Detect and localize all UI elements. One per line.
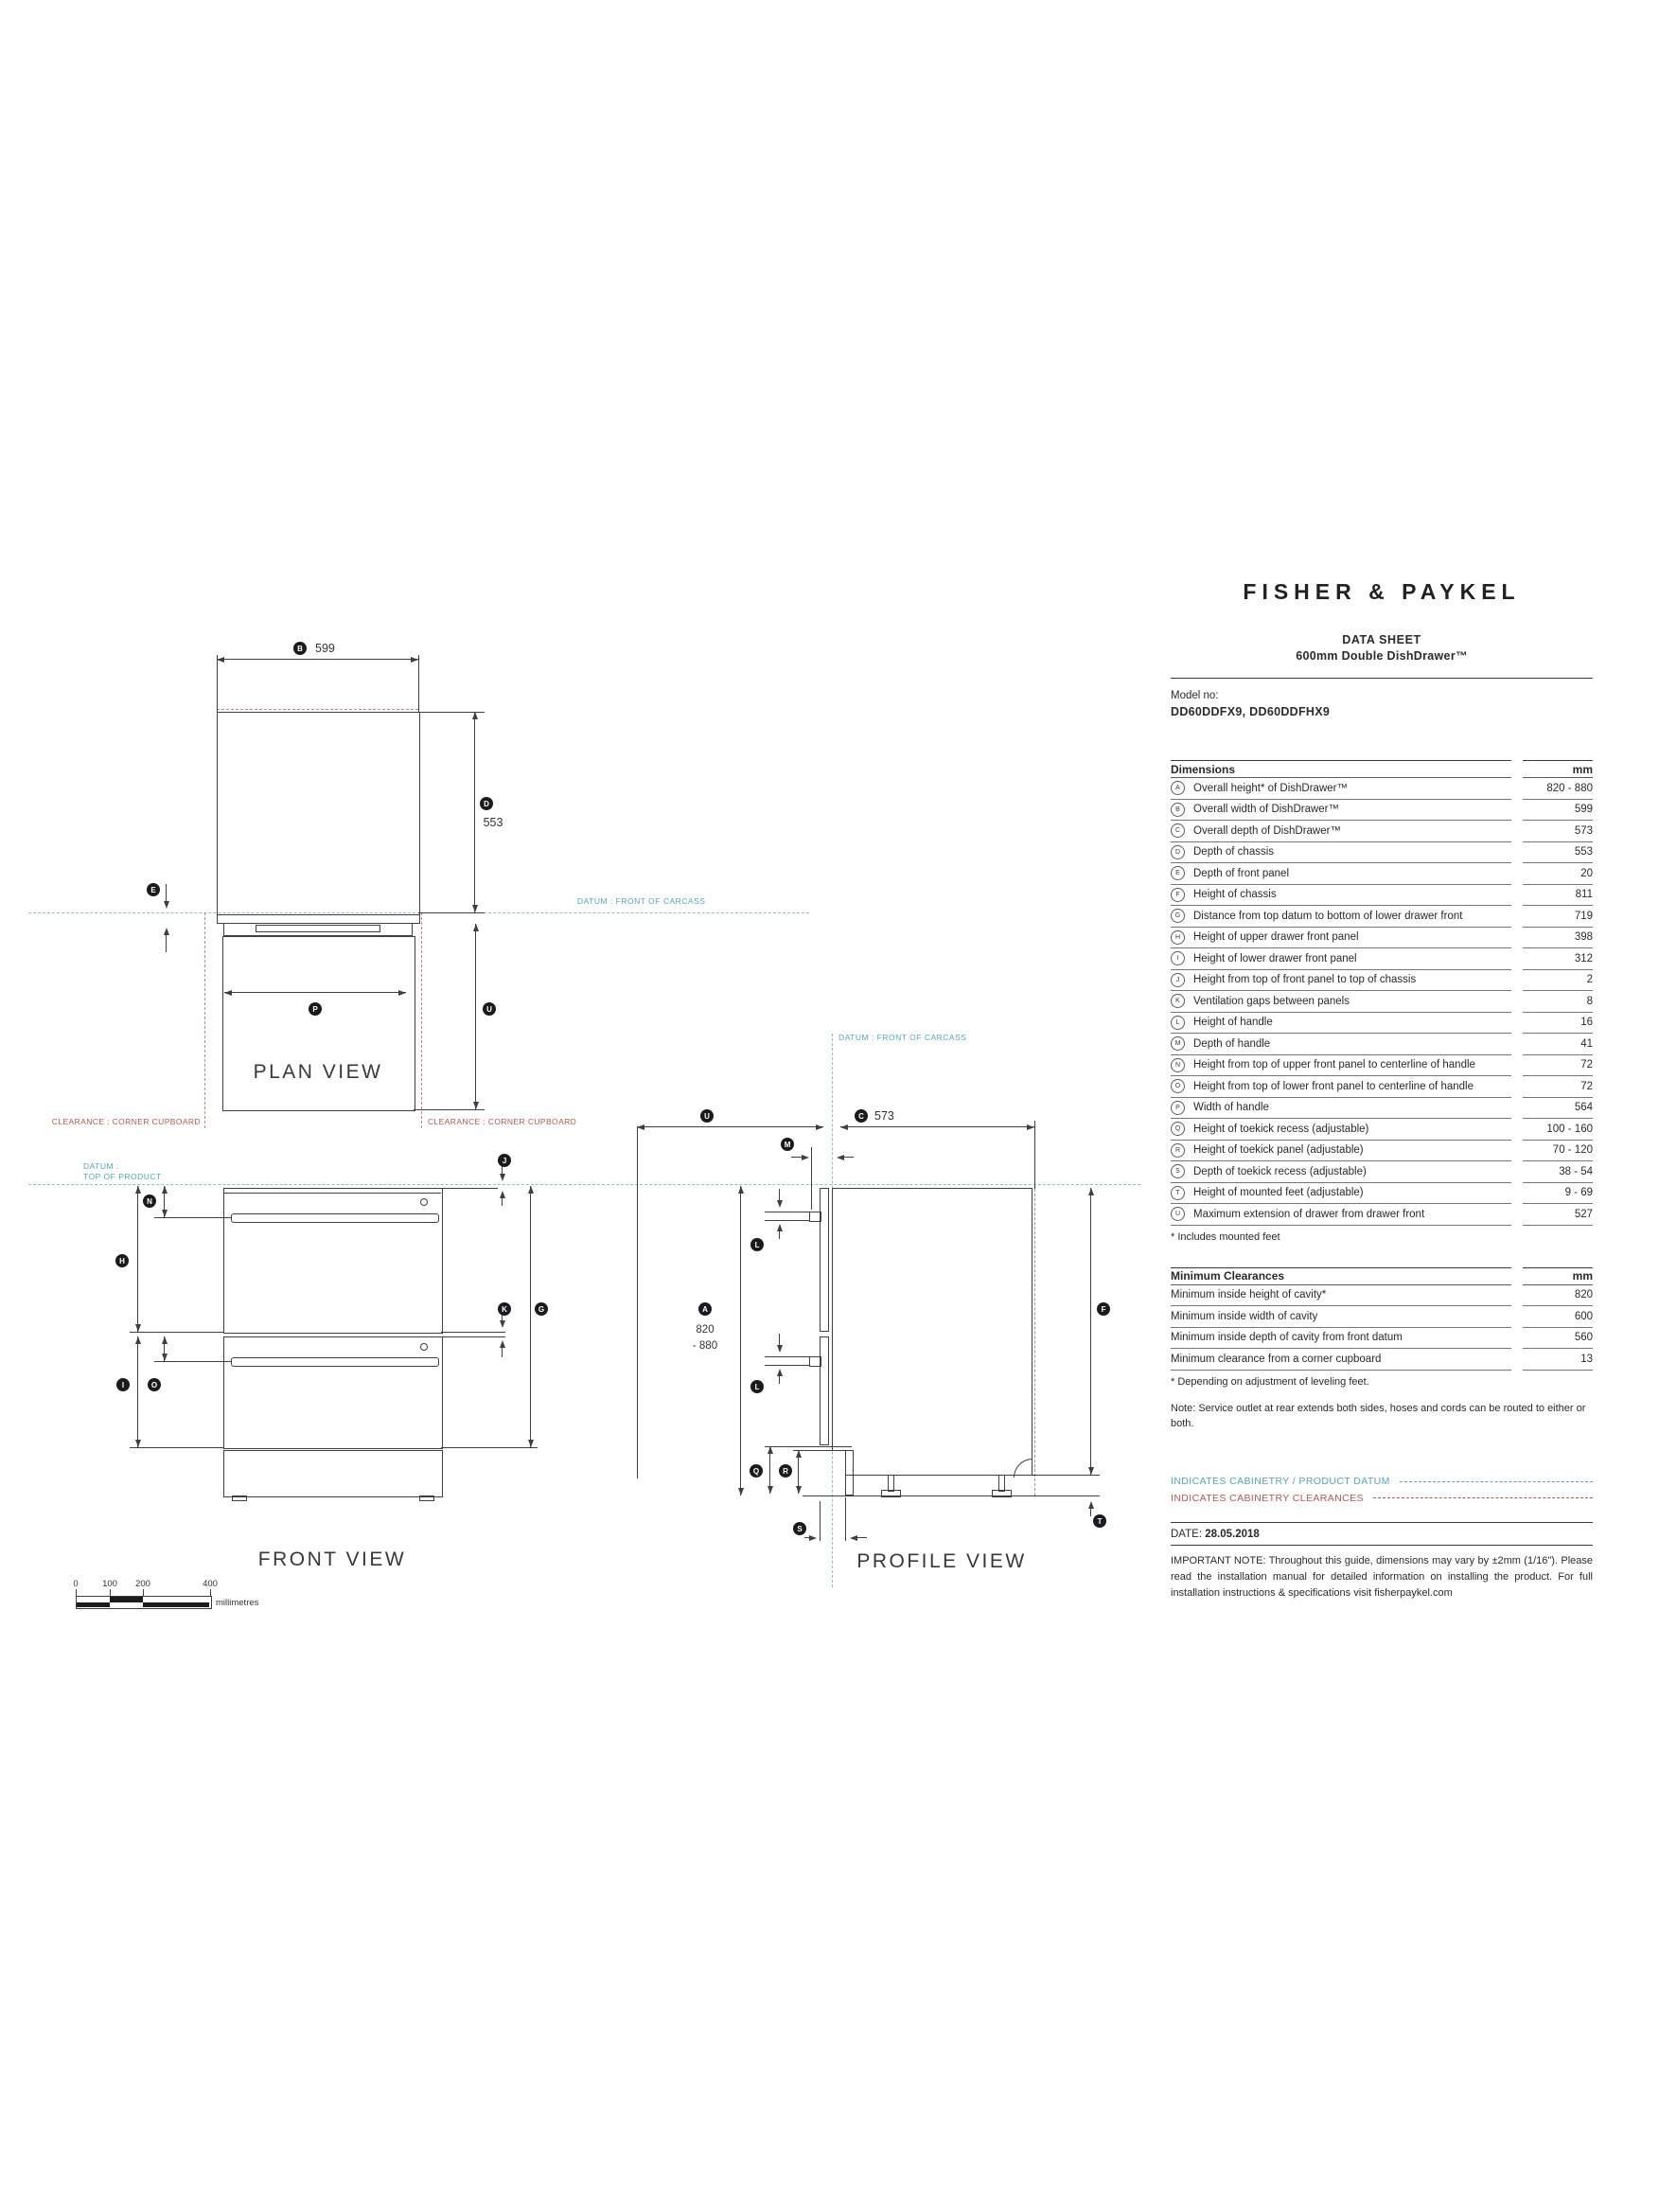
marker-badge-d: D	[480, 797, 494, 811]
spec-row: MDepth of handle41	[1171, 1034, 1593, 1055]
drawing-line	[803, 1495, 1100, 1496]
profile-extended-drawer-line	[637, 1126, 638, 1478]
arrowhead	[164, 928, 169, 935]
arrowhead	[796, 1486, 802, 1494]
drawing-line	[765, 1212, 809, 1212]
arrowhead	[500, 1191, 505, 1198]
row-marker-l: L	[1171, 1016, 1185, 1030]
marker-badge-t: T	[1093, 1514, 1107, 1529]
drawing-line	[765, 1220, 809, 1221]
spec-label: Height of mounted feet (adjustable)	[1193, 1187, 1364, 1198]
dimension-line	[475, 924, 476, 1109]
spec-row: THeight of mounted feet (adjustable)9 - …	[1171, 1183, 1593, 1205]
legend-clearance-row: INDICATES CABINETRY CLEARANCES	[1171, 1490, 1593, 1507]
marker-badge-b: B	[293, 642, 308, 656]
arrowhead	[162, 1186, 168, 1194]
arrowhead	[164, 901, 169, 909]
dimension-line	[840, 1126, 1034, 1127]
date-label: DATE:	[1171, 1529, 1202, 1540]
marker-badge-f: F	[1097, 1302, 1111, 1317]
drawing-line	[441, 1188, 498, 1189]
row-marker-d: D	[1171, 845, 1185, 859]
row-marker-c: C	[1171, 823, 1185, 838]
spec-label: Height of lower drawer front panel	[1193, 953, 1357, 964]
front-view-title: FRONT VIEW	[258, 1548, 406, 1571]
spec-label: Height of handle	[1193, 1017, 1273, 1028]
arrowhead	[135, 1336, 141, 1344]
scalebar-tick	[143, 1589, 144, 1596]
spec-value: 811	[1523, 885, 1593, 907]
drawing-line	[130, 1447, 223, 1448]
profile-upper-handle	[809, 1212, 821, 1222]
clearance-dash-sample	[1373, 1497, 1593, 1498]
arrowhead	[135, 1324, 141, 1332]
row-marker-k: K	[1171, 994, 1185, 1008]
drawing-line	[441, 1336, 505, 1337]
legend-datum-label: INDICATES CABINETRY / PRODUCT DATUM	[1171, 1476, 1390, 1487]
drawing-line	[1034, 1121, 1035, 1189]
drawing-line	[418, 655, 419, 712]
arrowhead	[809, 1535, 817, 1541]
scalebar-segment	[110, 1597, 143, 1602]
dimension-line	[637, 1126, 823, 1127]
spec-row: SDepth of toekick recess (adjustable)38 …	[1171, 1161, 1593, 1183]
brand-wordmark: FISHER & PAYKEL	[1171, 579, 1593, 605]
profile-chassis-outline	[1032, 1188, 1032, 1475]
spec-label: Height from top of lower front panel to …	[1193, 1081, 1474, 1092]
scalebar-tick-label: 400	[203, 1579, 218, 1589]
dimensions-table: DimensionsmmAOverall height* of DishDraw…	[1171, 760, 1593, 1226]
dim-value-c: 573	[874, 1109, 894, 1123]
dimension-line	[779, 1189, 780, 1200]
front-foot	[232, 1495, 247, 1501]
datum-label-top1: DATUM :	[83, 1161, 119, 1171]
dimension-line	[530, 1186, 531, 1447]
spec-row: EDepth of front panel20	[1171, 863, 1593, 885]
arrowhead	[768, 1486, 773, 1494]
divider	[1171, 1545, 1593, 1546]
marker-badge-a: A	[698, 1302, 713, 1317]
marker-badge-l: L	[750, 1380, 765, 1394]
arrowhead	[472, 905, 478, 912]
arrowhead	[1088, 1501, 1094, 1509]
scalebar-unit-label: millimetres	[216, 1598, 258, 1608]
spec-label: Distance from top datum to bottom of low…	[1193, 911, 1462, 922]
spec-row: KVentilation gaps between panels8	[1171, 991, 1593, 1013]
marker-badge-i: I	[116, 1378, 131, 1392]
arrowhead	[224, 990, 232, 996]
dimension-line	[791, 1157, 802, 1158]
spec-row: JHeight from top of front panel to top o…	[1171, 970, 1593, 992]
arrowhead	[777, 1345, 783, 1353]
datum-label-profile: DATUM : FRONT OF CARCASS	[838, 1033, 966, 1042]
arrowhead	[840, 1124, 848, 1130]
spec-value: 72	[1523, 1055, 1593, 1077]
spec-label: Width of handle	[1193, 1102, 1269, 1113]
row-marker-m: M	[1171, 1036, 1185, 1051]
dimension-line	[1090, 1509, 1091, 1516]
marker-badge-m: M	[781, 1138, 795, 1152]
dimension-line	[166, 935, 167, 952]
dimension-line	[857, 1537, 867, 1538]
dim-value-a1: 820	[696, 1324, 714, 1336]
row-marker-t: T	[1171, 1186, 1185, 1200]
scalebar-tick	[76, 1589, 77, 1596]
drawing-line	[441, 1332, 505, 1333]
plan-view-title: PLAN VIEW	[254, 1061, 383, 1084]
dimension-line	[502, 1348, 503, 1357]
scalebar-tick	[210, 1589, 211, 1596]
arrowhead	[777, 1224, 783, 1231]
row-marker-q: Q	[1171, 1122, 1185, 1136]
scalebar-tick	[110, 1589, 111, 1596]
spec-row: PWidth of handle564	[1171, 1098, 1593, 1120]
spec-value: 312	[1523, 948, 1593, 970]
clearance-label-left: CLEARANCE : CORNER CUPBOARD	[47, 1117, 201, 1126]
spec-row: LHeight of handle16	[1171, 1013, 1593, 1035]
front-foot	[419, 1495, 434, 1501]
front-upper-handle	[231, 1213, 439, 1223]
spec-label: Minimum inside height of cavity*	[1171, 1289, 1326, 1301]
row-marker-e: E	[1171, 866, 1185, 880]
spec-label: Minimum inside width of cavity	[1171, 1311, 1317, 1322]
arrowhead	[1088, 1188, 1094, 1195]
arrowhead	[473, 1102, 479, 1109]
arrowhead	[398, 990, 406, 996]
datum-label-top2: TOP OF PRODUCT	[83, 1172, 162, 1181]
spec-row: DDepth of chassis553	[1171, 842, 1593, 864]
arrowhead	[500, 1174, 505, 1181]
marker-badge-q: Q	[750, 1464, 764, 1478]
dimensions-footnote: * Includes mounted feet	[1171, 1231, 1593, 1243]
arrowhead	[1088, 1467, 1094, 1475]
dimension-line	[502, 1198, 503, 1206]
spec-value: 41	[1523, 1034, 1593, 1055]
spec-value: 600	[1523, 1306, 1593, 1328]
arrowhead	[500, 1320, 505, 1328]
clearance-dash-line	[204, 912, 205, 1128]
front-lower-drawer-panel	[223, 1336, 443, 1449]
dimension-line	[844, 1157, 854, 1158]
date-row: DATE: 28.05.2018	[1171, 1523, 1593, 1545]
spec-value: 20	[1523, 863, 1593, 885]
dim-value-a2: - 880	[693, 1340, 717, 1352]
drawing-line	[765, 1356, 809, 1357]
spec-label: Overall width of DishDrawer™	[1193, 804, 1339, 815]
drawing-line	[154, 1217, 231, 1218]
spec-label: Minimum clearance from a corner cupboard	[1171, 1354, 1381, 1365]
arrowhead	[837, 1155, 844, 1160]
spec-value: 13	[1523, 1349, 1593, 1371]
drawing-line	[130, 1332, 223, 1333]
spec-label: Maximum extension of drawer from drawer …	[1193, 1209, 1424, 1220]
spec-label: Depth of handle	[1193, 1038, 1270, 1050]
arrowhead	[528, 1186, 534, 1194]
profile-view-title: PROFILE VIEW	[856, 1550, 1026, 1573]
arrowhead	[802, 1155, 809, 1160]
spec-row: NHeight from top of upper front panel to…	[1171, 1055, 1593, 1077]
dimension-line	[474, 712, 475, 912]
spec-label: Minimum inside depth of cavity from fron…	[1171, 1332, 1403, 1343]
spec-value: 719	[1523, 906, 1593, 928]
spec-value: 564	[1523, 1098, 1593, 1120]
spec-header-row: Minimum Clearancesmm	[1171, 1267, 1593, 1285]
info-column: FISHER & PAYKEL DATA SHEET 600mm Double …	[1171, 579, 1593, 1601]
datum-dash-sample	[1400, 1481, 1593, 1482]
profile-lower-front-panel	[820, 1336, 829, 1445]
dimension-line	[740, 1186, 741, 1495]
row-marker-f: F	[1171, 888, 1185, 902]
dimension-line	[779, 1334, 780, 1345]
spec-header-row: Dimensionsmm	[1171, 760, 1593, 778]
spec-label: Minimum Clearances	[1171, 1269, 1284, 1283]
scalebar-tick-label: 100	[102, 1579, 117, 1589]
legend-datum-row: INDICATES CABINETRY / PRODUCT DATUM	[1171, 1474, 1593, 1491]
spec-row: Minimum inside width of cavity600	[1171, 1306, 1593, 1328]
important-note: IMPORTANT NOTE: Throughout this guide, d…	[1171, 1553, 1593, 1601]
clearance-dash-line	[217, 709, 418, 710]
arrowhead	[816, 1124, 823, 1130]
spec-label: Height of toekick panel (adjustable)	[1193, 1144, 1364, 1156]
spec-value: 820 - 880	[1523, 778, 1593, 800]
spec-row: COverall depth of DishDrawer™573	[1171, 821, 1593, 842]
fastener-detail	[420, 1198, 428, 1206]
drawing-line	[811, 1147, 812, 1210]
dim-value-d: 553	[484, 816, 503, 829]
row-marker-i: I	[1171, 951, 1185, 965]
marker-badge-k: K	[498, 1302, 512, 1317]
dimension-line	[166, 884, 167, 901]
plan-chassis-outline	[217, 712, 420, 915]
spec-label: Height from top of upper front panel to …	[1193, 1059, 1475, 1071]
dimension-line	[779, 1231, 780, 1239]
row-marker-r: R	[1171, 1143, 1185, 1158]
arrowhead	[411, 657, 418, 663]
spec-value: 820	[1523, 1285, 1593, 1307]
service-note: Note: Service outlet at rear extends bot…	[1171, 1401, 1593, 1432]
arrowhead	[472, 712, 478, 719]
dimension-line	[137, 1336, 138, 1447]
profile-lower-handle	[809, 1356, 821, 1367]
product-title: 600mm Double DishDrawer™	[1171, 649, 1593, 663]
front-upper-drawer-panel	[223, 1188, 443, 1334]
profile-upper-front-panel	[820, 1188, 829, 1332]
spec-row: Minimum clearance from a corner cupboard…	[1171, 1349, 1593, 1371]
arrowhead	[777, 1200, 783, 1208]
arrowhead	[135, 1186, 141, 1194]
spec-value: 553	[1523, 842, 1593, 864]
row-marker-j: J	[1171, 973, 1185, 987]
scalebar-tick-label: 200	[135, 1579, 150, 1589]
spec-row: Minimum inside depth of cavity from fron…	[1171, 1328, 1593, 1350]
spec-value: 573	[1523, 821, 1593, 842]
marker-badge-l: L	[750, 1238, 765, 1252]
arrowhead	[473, 924, 479, 931]
dimension-line	[217, 659, 418, 660]
model-number-label: Model no:	[1171, 690, 1593, 701]
arrowhead	[1027, 1124, 1034, 1130]
spec-label: Overall depth of DishDrawer™	[1193, 825, 1341, 837]
spec-label: Depth of front panel	[1193, 868, 1289, 879]
profile-chassis-outline	[845, 1475, 1100, 1476]
spec-value: 9 - 69	[1523, 1183, 1593, 1205]
spec-value: 2	[1523, 970, 1593, 992]
profile-hose-arc	[1014, 1459, 1032, 1478]
spec-row: GDistance from top datum to bottom of lo…	[1171, 906, 1593, 928]
divider	[1171, 678, 1593, 679]
spec-value: 398	[1523, 928, 1593, 949]
datasheet-page: { "header": { "brand": "FISHER & PAYKEL"…	[0, 0, 1659, 2212]
spec-row: Minimum inside height of cavity*820	[1171, 1285, 1593, 1307]
spec-value: 599	[1523, 800, 1593, 822]
arrowhead	[777, 1369, 783, 1376]
spec-value: 100 - 160	[1523, 1119, 1593, 1141]
drawing-line	[845, 1497, 846, 1541]
marker-badge-e: E	[147, 883, 161, 897]
dim-value-b: 599	[315, 642, 335, 655]
row-marker-g: G	[1171, 909, 1185, 923]
spec-label: Overall height* of DishDrawer™	[1193, 783, 1348, 794]
clearance-dash-line	[421, 912, 422, 1128]
spec-value: 16	[1523, 1013, 1593, 1035]
drawing-legend: INDICATES CABINETRY / PRODUCT DATUM INDI…	[1171, 1474, 1593, 1507]
spec-label: Ventilation gaps between panels	[1193, 996, 1350, 1007]
arrowhead	[162, 1336, 168, 1344]
spec-label: Height of chassis	[1193, 889, 1277, 900]
scalebar-segment	[77, 1602, 110, 1608]
marker-badge-j: J	[498, 1154, 512, 1168]
spec-row: IHeight of lower drawer front panel312	[1171, 948, 1593, 970]
arrowhead	[796, 1450, 802, 1458]
date-value: 28.05.2018	[1205, 1529, 1260, 1540]
row-marker-h: H	[1171, 930, 1185, 945]
drawing-line	[154, 1361, 231, 1362]
marker-badge-g: G	[535, 1302, 549, 1317]
service-dash-line	[1034, 1189, 1035, 1495]
arrowhead	[162, 1210, 168, 1217]
arrowhead	[217, 657, 224, 663]
marker-badge-n: N	[143, 1194, 157, 1209]
spec-row: OHeight from top of lower front panel to…	[1171, 1076, 1593, 1098]
row-marker-a: A	[1171, 781, 1185, 795]
marker-badge-r: R	[779, 1464, 793, 1478]
drawing-line	[418, 912, 485, 913]
profile-toekick-panel	[845, 1450, 854, 1495]
clearances-table: Minimum ClearancesmmMinimum inside heigh…	[1171, 1267, 1593, 1371]
spec-row: RHeight of toekick panel (adjustable)70 …	[1171, 1141, 1593, 1162]
plan-handle-detail	[256, 925, 380, 932]
dimension-line	[137, 1186, 138, 1332]
profile-chassis-outline	[832, 1188, 1032, 1189]
spec-label: Height from top of front panel to top of…	[1193, 974, 1416, 985]
legend-clearance-label: INDICATES CABINETRY CLEARANCES	[1171, 1493, 1364, 1504]
front-lower-handle	[231, 1357, 439, 1367]
plan-extended-drawer	[222, 936, 415, 1111]
scalebar-segment	[143, 1602, 209, 1608]
drawing-line	[820, 1501, 821, 1541]
clearance-label-right: CLEARANCE : CORNER CUPBOARD	[428, 1117, 576, 1126]
fastener-detail	[420, 1343, 428, 1351]
spec-label: Dimensions	[1171, 763, 1235, 776]
arrowhead	[768, 1446, 773, 1454]
spec-value: 70 - 120	[1523, 1141, 1593, 1162]
spec-label: Height of toekick recess (adjustable)	[1193, 1124, 1368, 1135]
spec-value: 560	[1523, 1328, 1593, 1350]
arrowhead	[738, 1186, 744, 1194]
datum-dash-line	[28, 1184, 1140, 1185]
spec-row: QHeight of toekick recess (adjustable)10…	[1171, 1119, 1593, 1141]
arrowhead	[135, 1440, 141, 1447]
row-marker-s: S	[1171, 1164, 1185, 1178]
spec-label: Depth of chassis	[1193, 846, 1274, 858]
dimension-line	[779, 1376, 780, 1384]
spec-value: mm	[1523, 760, 1593, 778]
model-numbers: DD60DDFX9, DD60DDFHX9	[1171, 705, 1593, 718]
drawing-line	[414, 1109, 485, 1110]
row-marker-b: B	[1171, 803, 1185, 817]
spec-row: HHeight of upper drawer front panel398	[1171, 928, 1593, 949]
spec-value: 527	[1523, 1204, 1593, 1226]
marker-badge-c: C	[855, 1109, 869, 1124]
row-marker-p: P	[1171, 1101, 1185, 1115]
drawing-line	[441, 1447, 538, 1448]
row-marker-n: N	[1171, 1058, 1185, 1072]
drawing-line	[765, 1446, 852, 1447]
arrowhead	[738, 1488, 744, 1495]
spec-value: mm	[1523, 1267, 1593, 1285]
marker-badge-h: H	[115, 1254, 130, 1268]
spec-label: Depth of toekick recess (adjustable)	[1193, 1166, 1367, 1177]
spec-row: BOverall width of DishDrawer™599	[1171, 800, 1593, 822]
scalebar-tick-label: 0	[73, 1579, 78, 1589]
clearances-footnote: * Depending on adjustment of leveling fe…	[1171, 1376, 1593, 1388]
front-toekick	[223, 1450, 443, 1497]
row-marker-u: U	[1171, 1207, 1185, 1221]
dimension-line	[224, 992, 406, 993]
marker-badge-o: O	[148, 1378, 162, 1392]
marker-badge-u: U	[700, 1109, 715, 1124]
spec-row: AOverall height* of DishDrawer™820 - 880	[1171, 778, 1593, 800]
profile-chassis-outline	[832, 1188, 833, 1450]
spec-value: 38 - 54	[1523, 1161, 1593, 1183]
arrowhead	[162, 1354, 168, 1361]
arrowhead	[850, 1535, 857, 1541]
dimension-line	[1090, 1188, 1091, 1475]
spec-row: UMaximum extension of drawer from drawer…	[1171, 1204, 1593, 1226]
row-marker-o: O	[1171, 1079, 1185, 1093]
marker-badge-s: S	[793, 1522, 807, 1536]
doc-title: DATA SHEET	[1171, 633, 1593, 646]
marker-badge-u: U	[483, 1002, 497, 1017]
datum-label-plan: DATUM : FRONT OF CARCASS	[577, 896, 705, 906]
spec-value: 8	[1523, 991, 1593, 1013]
arrowhead	[500, 1340, 505, 1348]
spec-label: Height of upper drawer front panel	[1193, 931, 1359, 943]
drawing-line	[765, 1365, 809, 1366]
spec-value: 72	[1523, 1076, 1593, 1098]
drawing-line	[217, 655, 218, 712]
spec-row: FHeight of chassis811	[1171, 885, 1593, 907]
arrowhead	[637, 1124, 644, 1130]
drawing-line	[223, 1193, 441, 1194]
arrowhead	[528, 1440, 534, 1447]
